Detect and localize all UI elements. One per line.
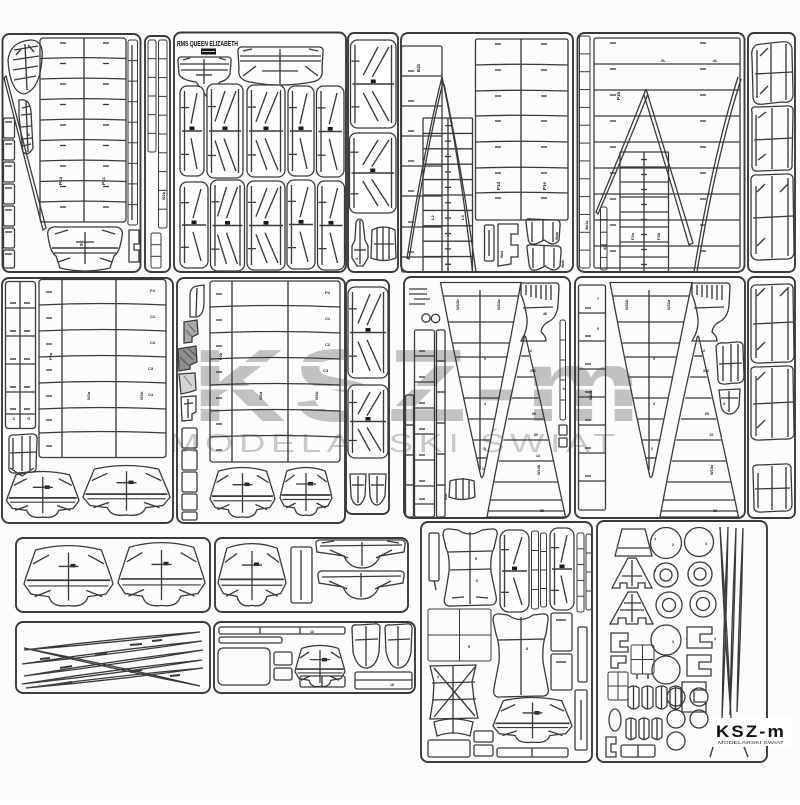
svg-text:C4: C4 bbox=[148, 392, 154, 397]
svg-text:61b: 61b bbox=[444, 494, 448, 500]
svg-text:C3: C3 bbox=[148, 366, 154, 371]
svg-text:W10b: W10b bbox=[537, 464, 541, 475]
svg-text:69: 69 bbox=[534, 433, 538, 437]
svg-text:13: 13 bbox=[310, 630, 314, 634]
svg-text:MODELARSKI ŚWIAT: MODELARSKI ŚWIAT bbox=[169, 428, 621, 458]
svg-text:KSZ-m: KSZ-m bbox=[716, 722, 786, 741]
svg-text:55: 55 bbox=[540, 509, 544, 513]
svg-text:B: B bbox=[80, 242, 83, 247]
svg-text:W1a: W1a bbox=[86, 391, 91, 400]
svg-text:4: 4 bbox=[653, 402, 655, 406]
svg-text:P4: P4 bbox=[150, 288, 156, 293]
svg-text:Wa4a: Wa4a bbox=[555, 232, 559, 240]
svg-text:Wd2a: Wd2a bbox=[589, 391, 593, 400]
svg-text:W11a: W11a bbox=[666, 299, 671, 310]
svg-text:W12a: W12a bbox=[496, 299, 501, 310]
svg-text:46: 46 bbox=[543, 312, 547, 316]
svg-text:RMS QUEEN ELIZABETH: RMS QUEEN ELIZABETH bbox=[177, 39, 238, 48]
svg-text:14: 14 bbox=[536, 454, 540, 458]
svg-text:W1b: W1b bbox=[314, 391, 319, 400]
svg-text:4: 4 bbox=[484, 402, 486, 406]
svg-text:20C: 20C bbox=[530, 369, 537, 373]
svg-text:P2a: P2a bbox=[48, 352, 53, 360]
svg-text:B1b: B1b bbox=[416, 64, 421, 72]
svg-text:C1: C1 bbox=[150, 314, 156, 319]
svg-text:W1b: W1b bbox=[139, 391, 144, 400]
svg-text:5: 5 bbox=[475, 557, 477, 561]
svg-text:Wd1a: Wd1a bbox=[585, 221, 589, 230]
svg-text:12: 12 bbox=[701, 349, 705, 353]
svg-text:4: 4 bbox=[714, 637, 716, 641]
svg-text:2: 2 bbox=[651, 447, 653, 451]
svg-text:16: 16 bbox=[390, 683, 394, 687]
svg-text:W10a: W10a bbox=[710, 464, 714, 475]
svg-text:L3: L3 bbox=[460, 215, 465, 220]
svg-text:9: 9 bbox=[484, 357, 486, 361]
svg-text:P4: P4 bbox=[325, 290, 331, 295]
svg-text:-3L: -3L bbox=[660, 59, 666, 63]
svg-text:2: 2 bbox=[437, 675, 439, 679]
svg-text:3: 3 bbox=[672, 640, 674, 644]
svg-text:41: 41 bbox=[603, 246, 607, 250]
svg-text:P2b: P2b bbox=[218, 352, 223, 360]
svg-text:9: 9 bbox=[653, 357, 655, 361]
svg-text:R: R bbox=[26, 133, 31, 136]
svg-text:KSZ-m: KSZ-m bbox=[192, 328, 648, 443]
svg-text:J3: J3 bbox=[709, 433, 713, 437]
svg-text:I1: I1 bbox=[12, 417, 16, 420]
svg-text:I2: I2 bbox=[27, 417, 31, 420]
svg-text:55: 55 bbox=[713, 509, 717, 513]
svg-text:W1a: W1a bbox=[258, 391, 263, 400]
svg-text:65: 65 bbox=[532, 412, 536, 416]
svg-text:W12b: W12b bbox=[455, 299, 460, 310]
svg-text:P1c: P1c bbox=[101, 176, 106, 185]
svg-text:1: 1 bbox=[482, 467, 484, 471]
svg-text:P1b: P1b bbox=[616, 91, 621, 100]
svg-text:20C: 20C bbox=[703, 369, 710, 373]
svg-text:MODELARSKI ŚWIAT: MODELARSKI ŚWIAT bbox=[718, 738, 784, 745]
svg-text:L2: L2 bbox=[430, 215, 435, 220]
svg-text:P1d: P1d bbox=[496, 181, 501, 190]
svg-text:Wa4b: Wa4b bbox=[561, 260, 565, 268]
svg-text:2: 2 bbox=[484, 447, 486, 451]
svg-text:6: 6 bbox=[476, 579, 478, 583]
svg-text:C2: C2 bbox=[150, 340, 156, 345]
svg-text:65: 65 bbox=[705, 412, 709, 416]
svg-text:8: 8 bbox=[526, 647, 528, 651]
svg-text:C3: C3 bbox=[323, 368, 329, 373]
svg-text:12: 12 bbox=[528, 349, 532, 353]
svg-text:C1: C1 bbox=[325, 316, 331, 321]
svg-text:7: 7 bbox=[597, 297, 599, 301]
svg-text:F2a: F2a bbox=[630, 232, 635, 240]
svg-text:W11b: W11b bbox=[624, 299, 629, 310]
svg-text:Wa4: Wa4 bbox=[500, 251, 504, 258]
svg-text:-4L: -4L bbox=[712, 59, 718, 63]
svg-text:P1a: P1a bbox=[58, 176, 63, 185]
svg-text:3: 3 bbox=[705, 542, 707, 546]
svg-text:W2b: W2b bbox=[162, 191, 166, 200]
svg-text:P1e: P1e bbox=[542, 181, 547, 190]
svg-text:9: 9 bbox=[597, 327, 599, 331]
svg-text:F2b: F2b bbox=[656, 232, 661, 240]
svg-text:3: 3 bbox=[672, 543, 674, 547]
svg-text:C2: C2 bbox=[325, 342, 331, 347]
